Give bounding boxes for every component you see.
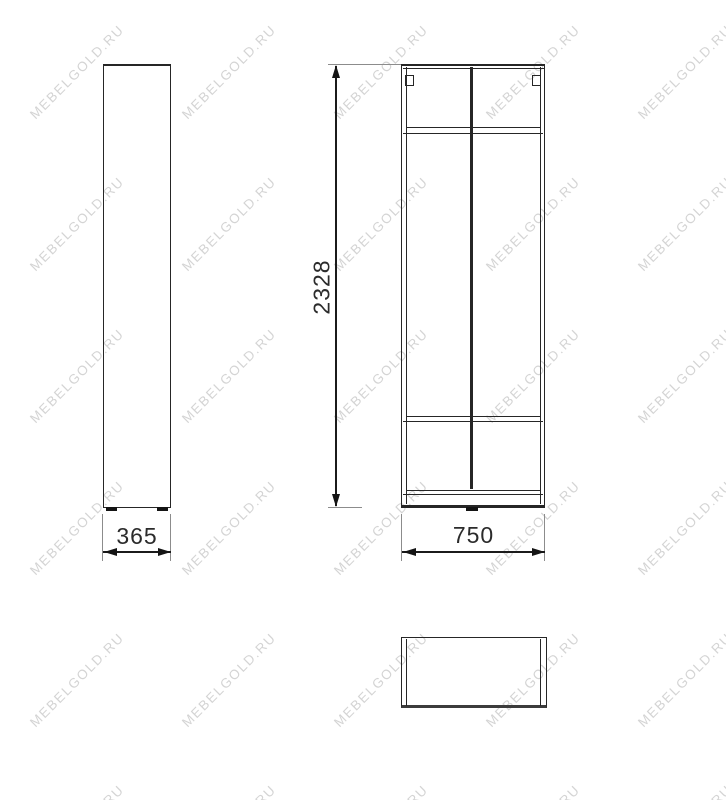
watermark-text: MEBELGOLD.RU [27, 630, 127, 730]
watermark-text: MEBELGOLD.RU [635, 782, 726, 800]
side-view-foot-right [157, 507, 168, 511]
front-view-door-divider [470, 67, 472, 489]
watermark-text: MEBELGOLD.RU [635, 326, 726, 426]
height-dimension-label: 2328 [311, 259, 334, 314]
watermark-text: MEBELGOLD.RU [179, 174, 279, 274]
watermark-text: MEBELGOLD.RU [483, 782, 583, 800]
width-dimension-label: 750 [402, 524, 545, 547]
front-view-door-bottom-line [406, 490, 540, 491]
height-dimension-line [335, 66, 336, 506]
height-arrow-up-icon [332, 65, 340, 78]
width-dimension-line [402, 551, 545, 552]
front-view-center-foot [466, 507, 478, 511]
front-view-right-hinge [532, 75, 541, 86]
depth-dimension-label: 365 [103, 525, 171, 548]
front-view-upper-shelf-line-2 [403, 133, 543, 134]
watermark-text: MEBELGOLD.RU [179, 630, 279, 730]
side-view-foot-left [106, 507, 117, 511]
watermark-text: MEBELGOLD.RU [179, 326, 279, 426]
front-view-left-hinge [405, 75, 414, 86]
watermark-text: MEBELGOLD.RU [27, 782, 127, 800]
watermark-text: MEBELGOLD.RU [179, 478, 279, 578]
depth-arrow-left-icon [104, 548, 117, 556]
dimension-drawing: MEBELGOLD.RUMEBELGOLD.RUMEBELGOLD.RUMEBE… [0, 0, 726, 800]
watermark-text: MEBELGOLD.RU [635, 22, 726, 122]
front-view-base-top-line [403, 494, 543, 495]
watermark-text: MEBELGOLD.RU [331, 782, 431, 800]
top-view-right-panel-line [540, 639, 541, 706]
height-arrow-down-icon [332, 494, 340, 507]
watermark-text: MEBELGOLD.RU [635, 478, 726, 578]
watermark-text: MEBELGOLD.RU [635, 174, 726, 274]
front-view-lower-shelf-line-2 [403, 421, 543, 422]
top-view-outline [401, 637, 547, 708]
side-view-outline [103, 64, 171, 508]
front-view-top-panel-line [403, 68, 544, 69]
watermark-text: MEBELGOLD.RU [179, 22, 279, 122]
width-arrow-right-icon [532, 548, 545, 556]
depth-arrow-right-icon [158, 548, 171, 556]
front-view-outline [401, 64, 545, 508]
front-view-lower-shelf-line-1 [406, 416, 540, 417]
watermark-text: MEBELGOLD.RU [179, 782, 279, 800]
front-view-upper-shelf-line-1 [406, 127, 540, 128]
top-view-left-panel-line [406, 639, 407, 706]
width-arrow-left-icon [403, 548, 416, 556]
watermark-text: MEBELGOLD.RU [635, 630, 726, 730]
